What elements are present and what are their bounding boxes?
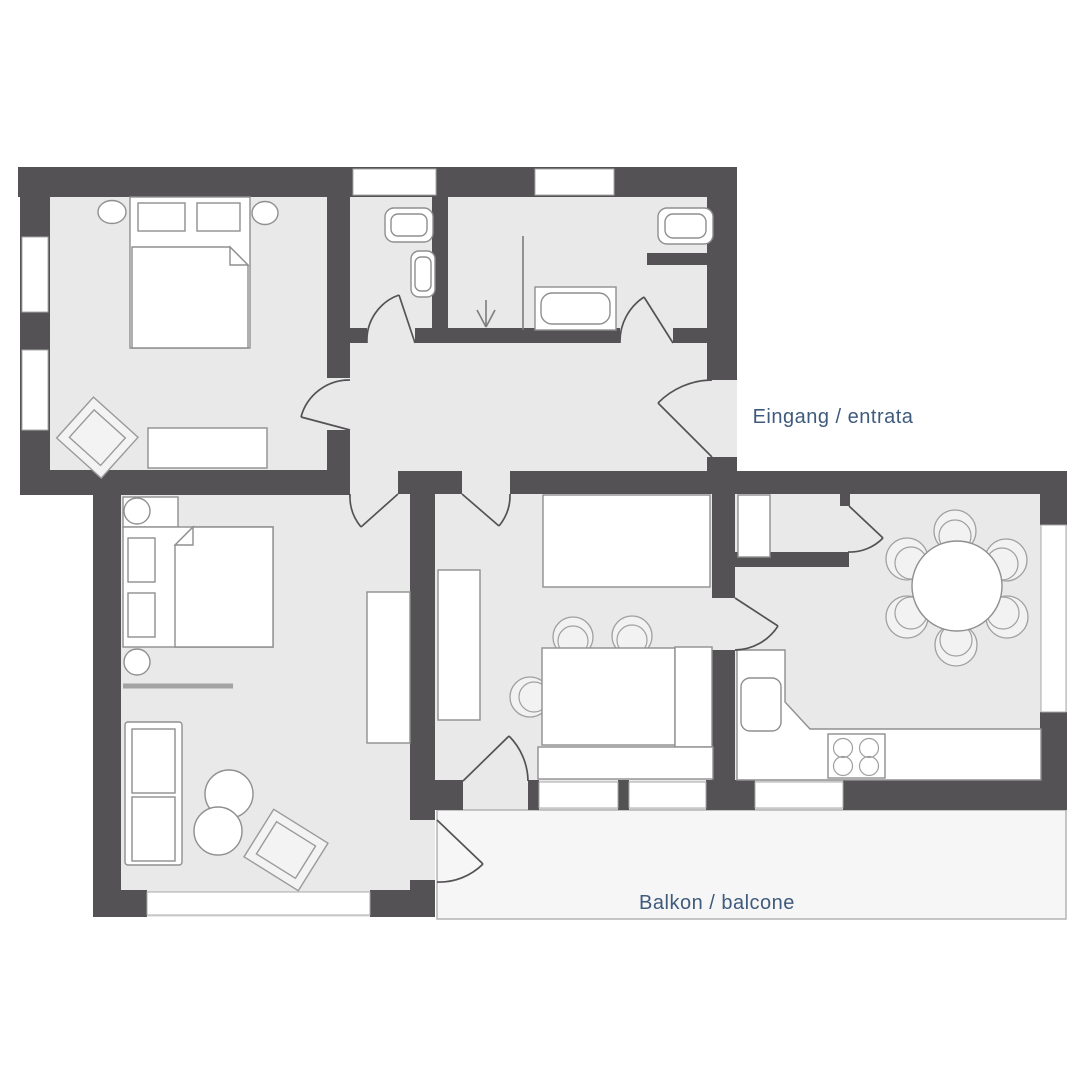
nightstand-lamp-right [252,202,278,225]
wall-left-upper [20,167,50,494]
wall-south-hall-b [510,471,1067,494]
wall-bedroom2-middle-divider-b [410,880,435,917]
wall-bedroom2-left [93,480,121,917]
window-master-left-2 [22,350,48,430]
wc-washbasin-bowl [391,214,427,236]
kitchen-sink [741,678,781,731]
bathtub-basin [541,293,610,324]
window-kitchen-balcony [755,782,843,808]
sofa-cushion-bottom [132,797,175,861]
entrance-label: Eingang / entrata [753,406,914,428]
wall-balcony-top-d [706,780,755,810]
closet-shelf [738,495,770,557]
side-table [675,647,712,747]
stove [828,734,885,778]
bedside-lamp-top [124,498,150,524]
wall-bedroom2-bottom-a [93,890,147,917]
wardrobe-middle [438,570,480,720]
window-dining-right [1041,525,1066,712]
wall-bath-half [647,253,713,265]
window-master-left-1 [22,237,48,312]
desk-table [542,648,675,745]
floor-plan-page: Eingang / entrata Balkon / balcone [0,0,1080,1080]
wall-master-right-a [327,197,350,378]
floor-plan: Eingang / entrata Balkon / balcone [0,0,1080,1080]
window-middle-balcony-2 [629,782,706,808]
bedroom-bench [148,428,267,468]
wc-toilet-bowl [415,257,431,291]
dining-table [912,541,1002,631]
bed2-pillow-top [128,538,155,582]
wall-right-upper-a [707,167,737,380]
bedside-lamp-bottom [124,649,150,675]
wall-master-bottom [20,470,350,495]
nightstand-lamp-left [98,201,126,224]
wall-middle-right-b [712,650,735,780]
wall-right-lower-a [1040,471,1067,525]
wall-balcony-top-b [528,780,539,810]
wall-balcony-top-e [843,780,1067,810]
wall-bedroom2-middle-divider-a [410,494,435,820]
wall-middle-right-a [712,494,735,598]
sofa-cushion-top [132,729,175,793]
window-middle-balcony-1 [539,782,618,808]
bench-middle-room [538,747,713,779]
bed-pillow-left [138,203,185,231]
window-wc-top [353,169,436,195]
window-bath-top [535,169,614,195]
wall-balcony-top-c [618,780,629,810]
wall-closet-stub [840,494,850,506]
pouf-table-2 [194,807,242,855]
wardrobe-bedroom2 [367,592,410,743]
bed2-pillow-bottom [128,593,155,637]
wall-right-lower-b [1040,712,1067,810]
wall-master-right-b [327,430,350,472]
wall-hall-north-a [340,328,367,343]
wall-south-hall-a [398,471,462,494]
window-bedroom2-bottom [147,892,370,915]
balcony-label: Balkon / balcone [639,892,795,914]
bath-washbasin-bowl [665,214,706,238]
single-bed [543,495,710,587]
bed-pillow-right [197,203,240,231]
